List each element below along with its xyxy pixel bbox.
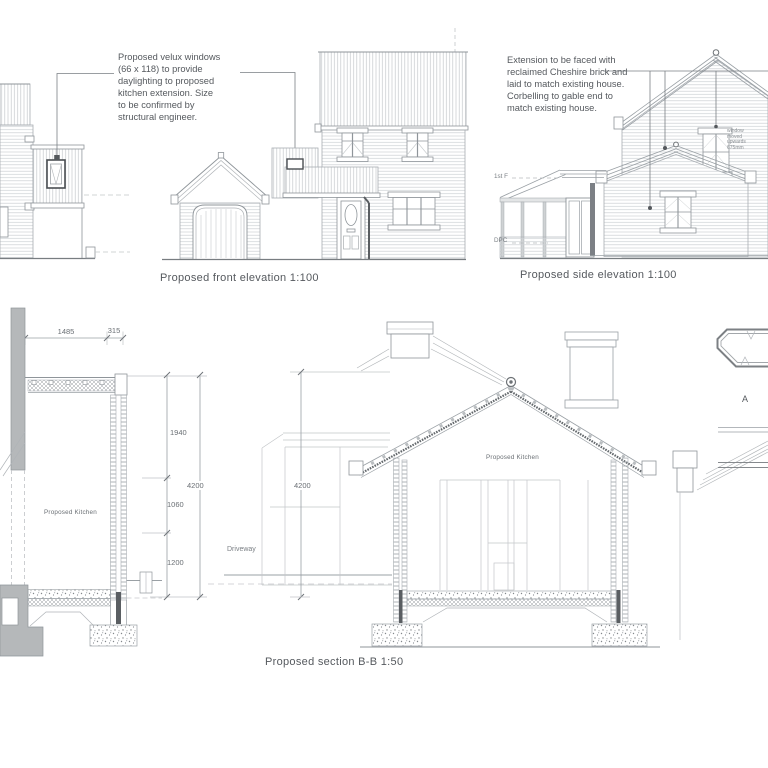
bay-window-plan bbox=[718, 330, 768, 367]
front-door bbox=[337, 198, 365, 260]
velux-front bbox=[287, 159, 303, 169]
caption-section-bb: Proposed section B-B 1:50 bbox=[265, 656, 403, 668]
ridge-finial bbox=[713, 50, 719, 56]
right-wall-outer-leaf bbox=[623, 458, 629, 622]
footing-right bbox=[592, 624, 647, 646]
first-floor-label: 1st F bbox=[494, 173, 508, 180]
wall-outer-leaf bbox=[121, 395, 127, 600]
main-roof bbox=[320, 52, 466, 127]
velux-annotation: Proposed velux windows (66 x 118) to pro… bbox=[118, 51, 248, 123]
wall-inner-leaf bbox=[111, 395, 117, 600]
dim-1485: 1485 bbox=[50, 327, 82, 336]
upper-window-right bbox=[402, 128, 433, 162]
neighbour-chimney bbox=[565, 332, 618, 408]
door-canopy bbox=[285, 167, 378, 194]
left-wall-outer-leaf bbox=[394, 458, 400, 622]
dpc-label: DPC bbox=[494, 237, 507, 244]
interior-openings bbox=[440, 480, 588, 590]
background-conservatory bbox=[262, 372, 392, 585]
lower-window bbox=[388, 192, 440, 230]
roof-band bbox=[0, 84, 30, 125]
left-partial-elevation bbox=[0, 84, 130, 259]
conservatory bbox=[500, 170, 606, 258]
right-details bbox=[673, 330, 768, 641]
drawing-sheet: Proposed velux windows (66 x 118) to pro… bbox=[0, 0, 768, 768]
detail-a-label: A bbox=[742, 394, 748, 404]
floor-slab bbox=[407, 591, 611, 599]
section-left bbox=[0, 308, 162, 656]
section-bb bbox=[262, 322, 660, 647]
window-moved-annotation: window moved upwards 675mm bbox=[727, 129, 761, 151]
caption-front-elevation: Proposed front elevation 1:100 bbox=[160, 272, 319, 284]
caption-side-elevation: Proposed side elevation 1:100 bbox=[520, 269, 677, 281]
extension-window bbox=[660, 191, 696, 233]
kitchen-label-section: Proposed Kitchen bbox=[486, 454, 539, 461]
driveway-lines bbox=[208, 575, 392, 584]
left-wall-inner-leaf bbox=[402, 460, 407, 622]
dim-4200-left: 4200 bbox=[186, 481, 205, 490]
brick-annotation: Extension to be faced with reclaimed Che… bbox=[507, 54, 667, 114]
downpipe bbox=[590, 183, 595, 256]
footing-left bbox=[372, 624, 422, 646]
footing bbox=[90, 625, 137, 646]
dim-1940: 1940 bbox=[170, 428, 187, 437]
upper-window-left bbox=[337, 128, 368, 162]
garage bbox=[171, 153, 269, 260]
right-wall-inner-leaf bbox=[611, 460, 616, 622]
dim-4200-section: 4200 bbox=[293, 481, 312, 490]
kitchen-label-left: Proposed Kitchen bbox=[44, 509, 97, 516]
floor-slab bbox=[28, 590, 111, 599]
dim-1060: 1060 bbox=[167, 500, 184, 509]
wall-hatch bbox=[0, 125, 33, 258]
dim-1200: 1200 bbox=[167, 558, 184, 567]
driveway-label: Driveway bbox=[227, 546, 256, 553]
dim-315: 315 bbox=[102, 326, 126, 335]
architectural-linework bbox=[0, 0, 768, 768]
